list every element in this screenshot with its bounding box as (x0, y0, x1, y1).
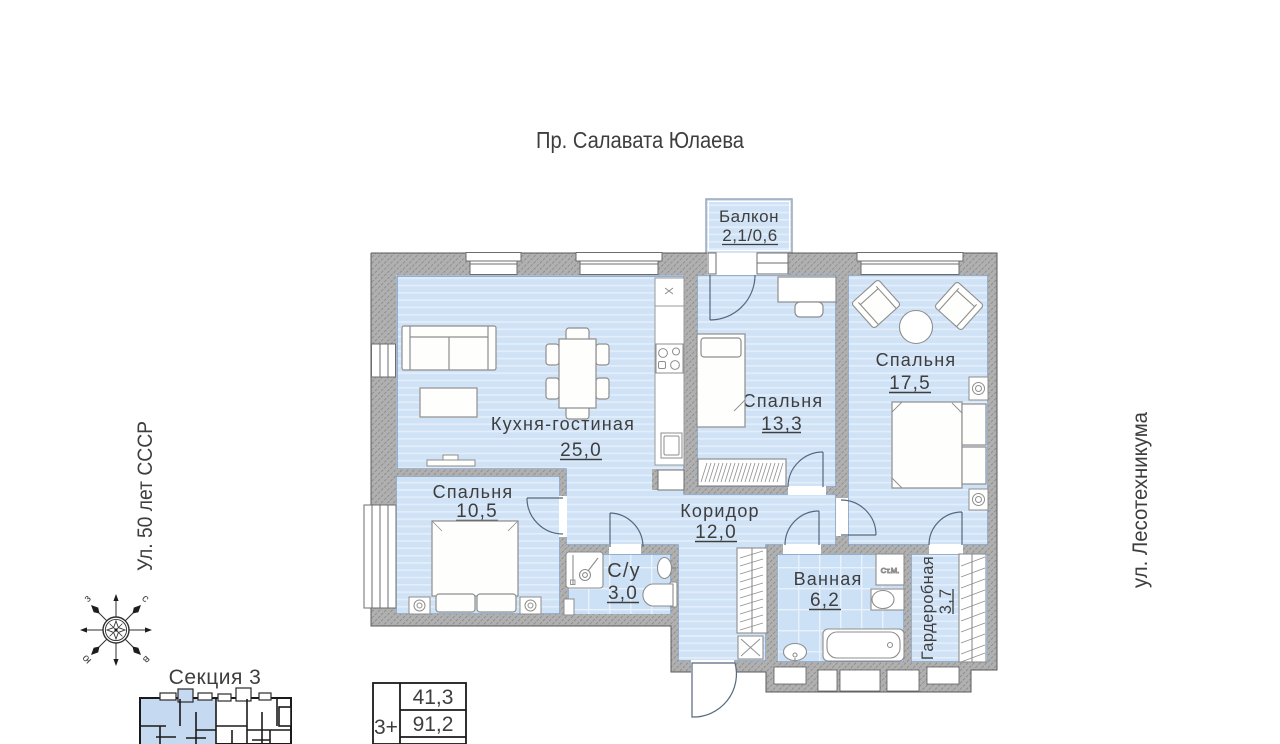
svg-text:Ул. 50 лет СССР: Ул. 50 лет СССР (134, 421, 157, 571)
svg-text:Спальня: Спальня (433, 482, 514, 502)
svg-text:6,2: 6,2 (810, 590, 840, 611)
svg-text:Гардеробная: Гардеробная (919, 556, 937, 660)
svg-text:ул. Лесотехникума: ул. Лесотехникума (1129, 412, 1152, 588)
svg-text:Ванная: Ванная (794, 569, 863, 589)
svg-text:3,7: 3,7 (937, 588, 955, 615)
svg-text:Коридор: Коридор (680, 501, 760, 521)
svg-text:Пр. Салавата Юлаева: Пр. Салавата Юлаева (536, 127, 744, 153)
svg-text:Ст.М.: Ст.М. (881, 566, 899, 575)
svg-text:10,5: 10,5 (456, 501, 498, 522)
svg-text:Спальня: Спальня (743, 391, 824, 411)
svg-text:41,3: 41,3 (413, 686, 454, 709)
svg-text:3+: 3+ (374, 716, 398, 739)
svg-text:17,5: 17,5 (889, 373, 931, 394)
svg-text:91,2: 91,2 (413, 713, 454, 736)
svg-text:3,0: 3,0 (608, 583, 638, 604)
svg-text:Кухня-гостиная: Кухня-гостиная (491, 414, 635, 434)
svg-text:12,0: 12,0 (695, 522, 737, 543)
svg-text:С/у: С/у (607, 560, 641, 582)
svg-text:25,0: 25,0 (560, 440, 602, 461)
svg-text:2,1/0,6: 2,1/0,6 (722, 226, 778, 245)
svg-text:Спальня: Спальня (876, 350, 957, 370)
svg-text:Балкон: Балкон (719, 207, 779, 226)
svg-text:Секция 3: Секция 3 (169, 666, 262, 689)
